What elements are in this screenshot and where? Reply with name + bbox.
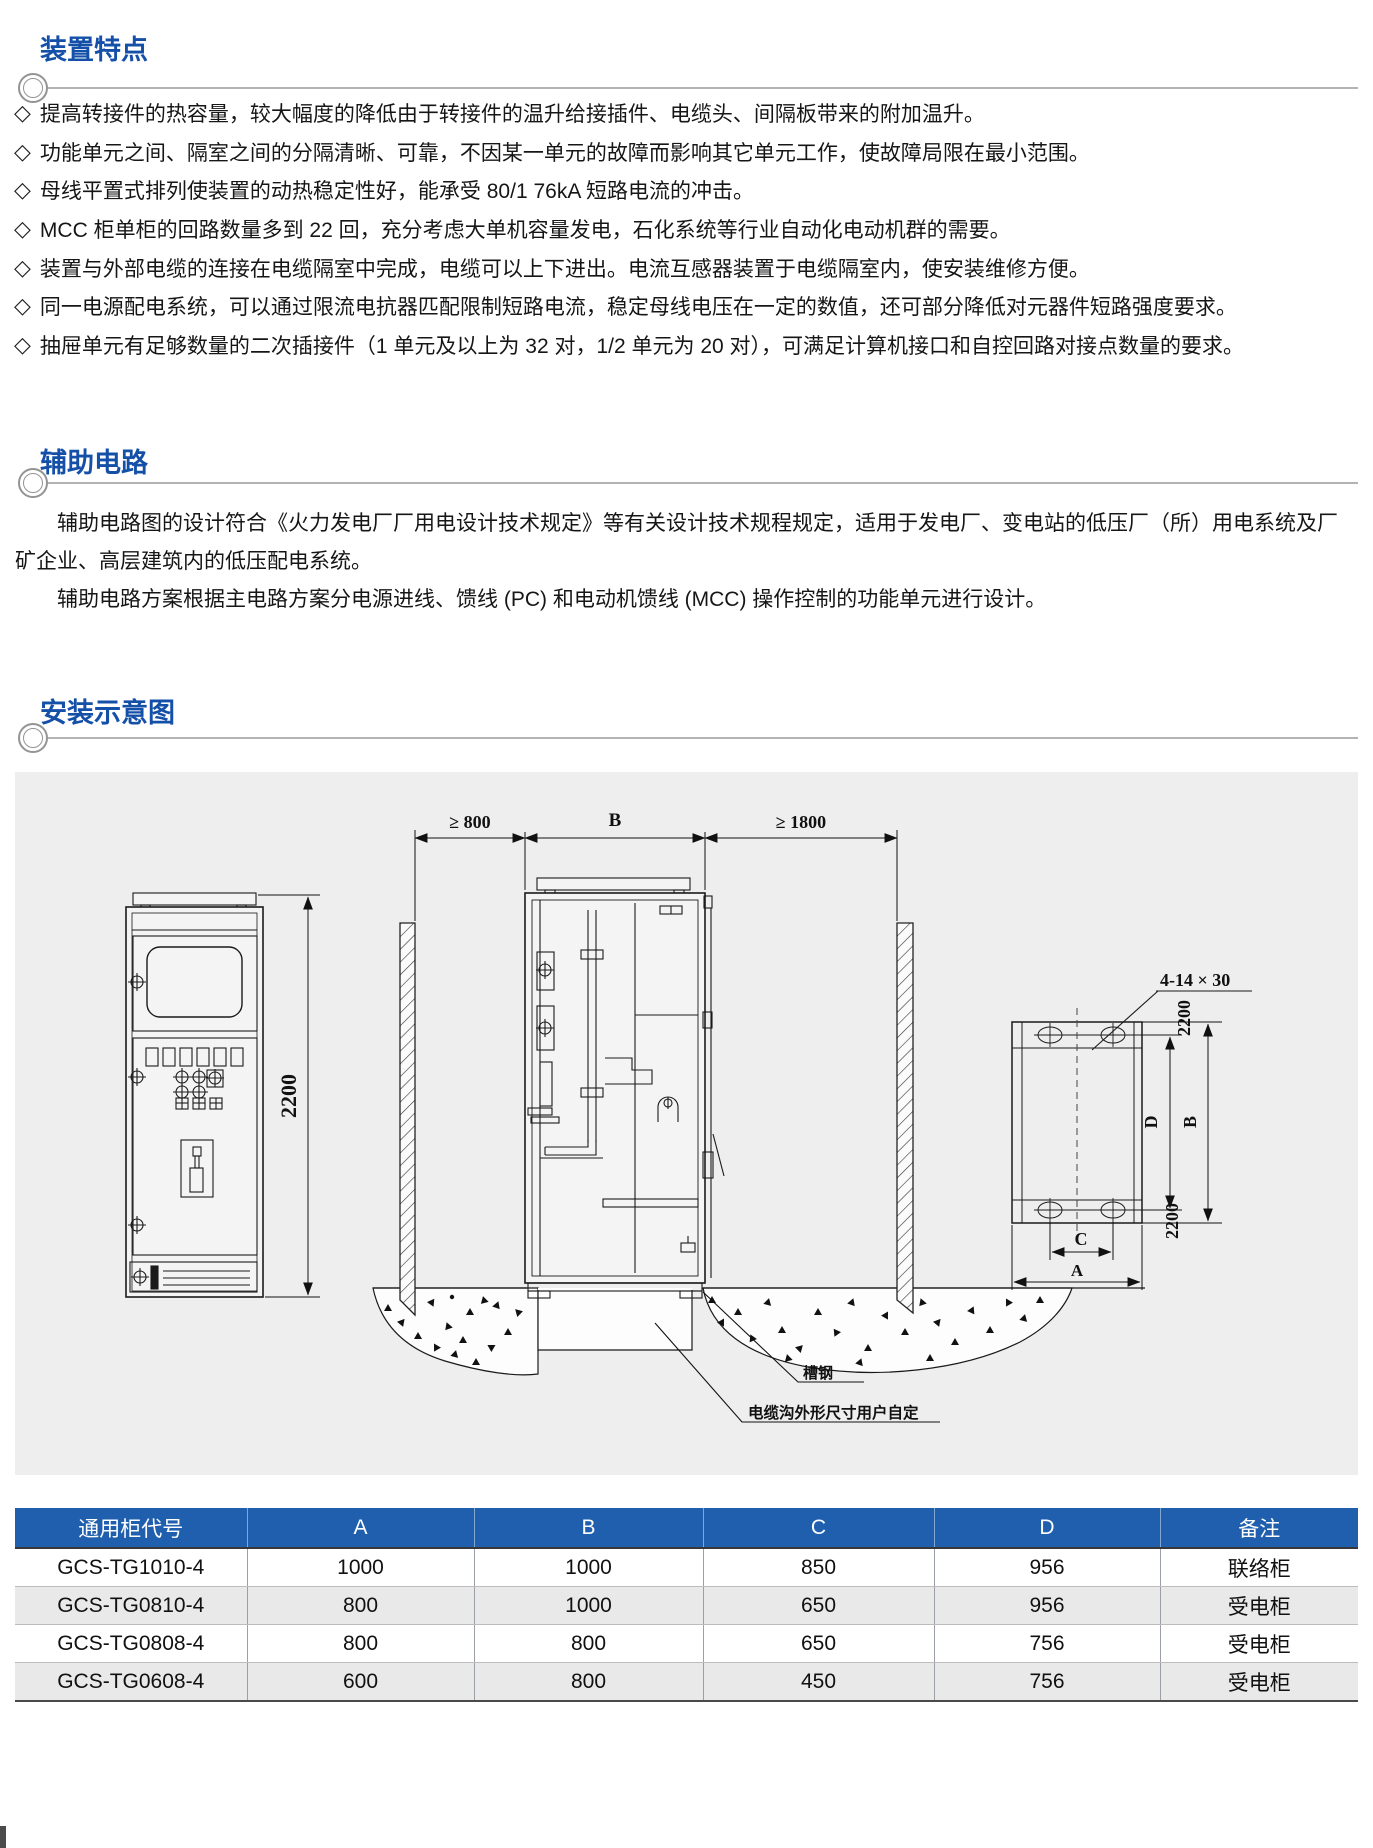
diamond-bullet-icon: ◇ [14, 139, 31, 165]
cell-code: GCS-TG0810-4 [15, 1587, 247, 1625]
cell-c: 650 [703, 1625, 934, 1663]
foundation-drawing [373, 1288, 1145, 1375]
feature-item: ◇抽屉单元有足够数量的二次插接件（1 单元及以上为 32 对，1/2 单元为 2… [14, 326, 1367, 365]
cell-b: 1000 [474, 1548, 703, 1587]
dim-left-clearance: ≥ 800 [449, 812, 490, 832]
dim-plan-d: D [1141, 1116, 1161, 1129]
section-title-auxiliary: 辅助电路 [40, 441, 148, 480]
cell-b: 800 [474, 1625, 703, 1663]
dim-plan-a: A [1071, 1261, 1084, 1280]
cell-note: 受电柜 [1160, 1663, 1358, 1702]
cell-a: 800 [247, 1587, 474, 1625]
dim-right-clearance: ≥ 1800 [776, 812, 826, 832]
diamond-bullet-icon: ◇ [14, 177, 31, 203]
dim-cabinet-depth: B [609, 810, 622, 831]
cell-code: GCS-TG0808-4 [15, 1625, 247, 1663]
table-row: GCS-TG1010-4 1000 1000 850 956 联络柜 [15, 1548, 1358, 1587]
feature-list: ◇提高转接件的热容量，较大幅度的降低由于转接件的温升给接插件、电缆头、间隔板带来… [14, 94, 1367, 364]
table-row: GCS-TG0808-4 800 800 650 756 受电柜 [15, 1625, 1358, 1663]
col-header-d: D [934, 1508, 1160, 1548]
installation-diagram: 2200 [15, 772, 1358, 1475]
cell-d: 956 [934, 1548, 1160, 1587]
col-header-code: 通用柜代号 [15, 1508, 247, 1548]
diamond-bullet-icon: ◇ [14, 293, 31, 319]
feature-item: ◇装置与外部电缆的连接在电缆隔室中完成，电缆可以上下进出。电流互感器装置于电缆隔… [14, 248, 1367, 287]
feature-text: 提高转接件的热容量，较大幅度的降低由于转接件的温升给接插件、电缆头、间隔板带来的… [40, 98, 985, 128]
plan-view-dimensions [1012, 1022, 1222, 1290]
diamond-bullet-icon: ◇ [14, 332, 31, 358]
section-title-features: 装置特点 [40, 28, 148, 67]
feature-text: 母线平置式排列使装置的动热稳定性好，能承受 80/1 76kA 短路电流的冲击。 [40, 175, 754, 205]
section-title-installation: 安装示意图 [40, 691, 175, 730]
ring-icon-inner [23, 728, 43, 748]
cell-d: 756 [934, 1625, 1160, 1663]
feature-text: 抽屉单元有足够数量的二次插接件（1 单元及以上为 32 对，1/2 单元为 20… [40, 330, 1244, 360]
cell-note: 联络柜 [1160, 1548, 1358, 1587]
section-rule [30, 482, 1358, 484]
catalog-page: 装置特点 ◇提高转接件的热容量，较大幅度的降低由于转接件的温升给接插件、电缆头、… [0, 0, 1373, 1848]
feature-item: ◇母线平置式排列使装置的动热稳定性好，能承受 80/1 76kA 短路电流的冲击… [14, 171, 1367, 210]
col-header-b: B [474, 1508, 703, 1548]
table-header-row: 通用柜代号 A B C D 备注 [15, 1508, 1358, 1548]
mounting-plan-view [1012, 991, 1252, 1240]
cell-c: 650 [703, 1587, 934, 1625]
feature-item: ◇MCC 柜单柜的回路数量多到 22 回，充分考虑大单机容量发电，石化系统等行业… [14, 210, 1367, 249]
general-cabinet-dimension-table: 通用柜代号 A B C D 备注 GCS-TG1010-4 1000 1000 … [15, 1508, 1358, 1702]
dim-plan-2200-bottom: 2200 [1162, 1203, 1182, 1239]
page-edge-artifact [0, 1826, 6, 1848]
cell-note: 受电柜 [1160, 1587, 1358, 1625]
auxiliary-paragraph: 辅助电路图的设计符合《火力发电厂厂用电设计技术规定》等有关设计技术规程规定，适用… [15, 505, 1358, 581]
diamond-bullet-icon: ◇ [14, 216, 31, 242]
cell-a: 600 [247, 1663, 474, 1702]
dim-plan-b: B [1180, 1116, 1200, 1128]
cabinet-side-view [525, 878, 724, 1298]
cell-code: GCS-TG0608-4 [15, 1663, 247, 1702]
section-rule [30, 737, 1358, 739]
dim-plan-c: C [1075, 1229, 1088, 1249]
cell-b: 800 [474, 1663, 703, 1702]
feature-text: 同一电源配电系统，可以通过限流电抗器匹配限制短路电流，稳定母线电压在一定的数值，… [40, 291, 1237, 321]
cell-d: 756 [934, 1663, 1160, 1702]
cell-c: 450 [703, 1663, 934, 1702]
feature-text: 功能单元之间、隔室之间的分隔清晰、可靠，不因某一单元的故障而影响其它单元工作，使… [40, 137, 1090, 167]
cell-b: 1000 [474, 1587, 703, 1625]
cell-note: 受电柜 [1160, 1625, 1358, 1663]
cell-a: 800 [247, 1625, 474, 1663]
col-header-c: C [703, 1508, 934, 1548]
col-header-a: A [247, 1508, 474, 1548]
label-slot-spec: 4-14 × 30 [1160, 970, 1230, 990]
table-row: GCS-TG0810-4 800 1000 650 956 受电柜 [15, 1587, 1358, 1625]
feature-text: 装置与外部电缆的连接在电缆隔室中完成，电缆可以上下进出。电流互感器装置于电缆隔室… [40, 253, 1090, 283]
ring-icon-inner [23, 473, 43, 493]
feature-item: ◇提高转接件的热容量，较大幅度的降低由于转接件的温升给接插件、电缆头、间隔板带来… [14, 94, 1367, 133]
dim-front-height: 2200 [276, 1074, 301, 1118]
table-row: GCS-TG0608-4 600 800 450 756 受电柜 [15, 1663, 1358, 1702]
label-cable-trench: 电缆沟外形尺寸用户自定 [748, 1403, 919, 1422]
feature-item: ◇同一电源配电系统，可以通过限流电抗器匹配限制短路电流，稳定母线电压在一定的数值… [14, 287, 1367, 326]
cell-d: 956 [934, 1587, 1160, 1625]
col-header-note: 备注 [1160, 1508, 1358, 1548]
cell-c: 850 [703, 1548, 934, 1587]
feature-text: MCC 柜单柜的回路数量多到 22 回，充分考虑大单机容量发电，石化系统等行业自… [40, 214, 1011, 244]
diamond-bullet-icon: ◇ [14, 255, 31, 281]
section-rule [30, 87, 1358, 89]
auxiliary-text: 辅助电路图的设计符合《火力发电厂厂用电设计技术规定》等有关设计技术规程规定，适用… [15, 505, 1358, 619]
label-channel-steel: 槽钢 [803, 1364, 833, 1382]
auxiliary-paragraph: 辅助电路方案根据主电路方案分电源进线、馈线 (PC) 和电动机馈线 (MCC) … [15, 581, 1358, 619]
installation-diagram-panel: 2200 [15, 772, 1358, 1475]
feature-item: ◇功能单元之间、隔室之间的分隔清晰、可靠，不因某一单元的故障而影响其它单元工作，… [14, 133, 1367, 172]
cabinet-front-view [126, 893, 263, 1297]
cell-code: GCS-TG1010-4 [15, 1548, 247, 1587]
diamond-bullet-icon: ◇ [14, 100, 31, 126]
cell-a: 1000 [247, 1548, 474, 1587]
dim-plan-2200-top: 2200 [1174, 1000, 1194, 1036]
